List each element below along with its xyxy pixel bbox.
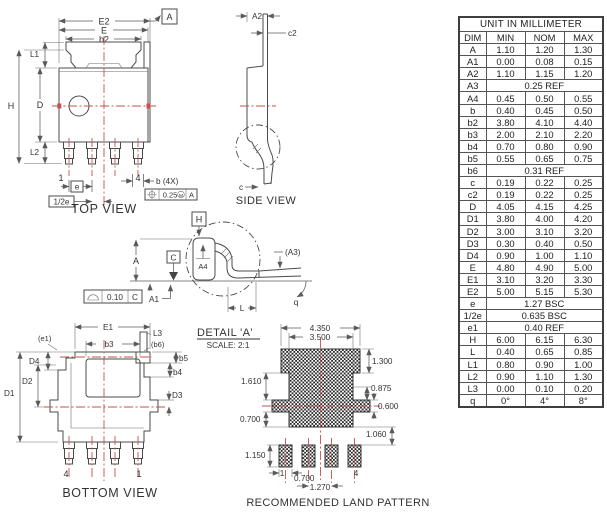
table-row: b60.31 REF [459,165,603,177]
value-cell: 2.00 [486,128,525,140]
table-row: A10.000.080.15 [459,56,603,68]
value-cell: L1 [459,358,486,370]
value-cell: A2 [459,68,486,80]
col-header-dim: DIM [459,32,486,44]
side-view-title: SIDE VIEW [236,195,297,207]
dim-label-1270: 1.270 [310,483,331,492]
value-cell: e [459,298,486,310]
value-cell: 1.30 [564,370,603,382]
value-cell: 0.90 [564,140,603,152]
dim-label-D3: D3 [172,391,183,400]
dim-label-half-e: 1/2e [54,198,70,207]
table-row: b40.700.800.90 [459,140,603,152]
table-row: b23.804.104.40 [459,116,603,128]
top-pin1-label: 1 [58,173,63,183]
table-row: q0°4°8° [459,394,603,407]
value-span-cell: 0.25 REF [486,80,603,92]
value-cell: 1/2e [459,310,486,322]
dim-label-H: H [8,101,15,111]
value-cell: 4.10 [525,116,564,128]
value-cell: 0.70 [486,140,525,152]
value-cell: 1.10 [525,370,564,382]
dim-label-L3: L3 [153,329,163,338]
table-row: c20.190.220.25 [459,189,603,201]
value-span-cell: 0.635 BSC [486,310,603,322]
value-cell: 4.40 [564,116,603,128]
table-row: L20.901.101.30 [459,370,603,382]
svg-text:M: M [179,193,183,199]
value-cell: 0.45 [486,92,525,104]
value-cell: L3 [459,382,486,394]
bottom-pin1-label: 1 [136,469,141,479]
land-pattern-main-pad [272,349,370,427]
value-cell: 3.80 [486,116,525,128]
dim-label-A3: (A3) [285,248,301,257]
side-view: A2 c2 c SIDE VIEW [236,12,297,207]
value-cell: 1.20 [525,44,564,56]
value-cell: 5.00 [486,285,525,297]
table-row: D4.054.154.25 [459,201,603,213]
table-row: L10.800.901.00 [459,358,603,370]
land-pin4-label: 4 [354,469,359,478]
value-cell: D2 [459,225,486,237]
flatness-tolerance-datum: C [132,293,138,302]
value-cell: 1.10 [564,249,603,261]
value-cell: 4.80 [486,261,525,273]
value-cell: 5.00 [564,261,603,273]
position-tolerance-frame: 0.25 M A [145,189,197,200]
table-row: b32.002.102.20 [459,128,603,140]
value-cell: 4.05 [486,201,525,213]
datum-a-label: A [166,12,172,22]
table-row: A30.25 REF [459,80,603,92]
package-body-top [59,68,148,142]
value-cell: 3.80 [486,213,525,225]
dim-label-E1: E1 [103,323,113,332]
value-cell: e1 [459,322,486,334]
table-row: H6.006.156.30 [459,334,603,346]
value-cell: 1.10 [486,44,525,56]
value-cell: 6.15 [525,334,564,346]
table-row: D40.901.001.10 [459,249,603,261]
land-pin1-label: 1 [280,469,285,478]
value-cell: 1.20 [564,68,603,80]
value-cell: b6 [459,165,486,177]
value-cell: D [459,201,486,213]
value-cell: b5 [459,152,486,164]
value-cell: L [459,346,486,358]
value-cell: 0.25 [564,189,603,201]
position-tolerance-icon [148,190,157,199]
mmc-modifier-icon: M [178,191,185,199]
value-cell: 1.15 [525,68,564,80]
land-pattern-view: 4.350 3.500 1.300 0.875 0.600 1.060 1.61… [240,324,430,509]
value-cell: 0.45 [525,104,564,116]
table-row: A1.101.201.30 [459,44,603,56]
dim-label-1150: 1.150 [245,451,266,460]
dim-label-0600: 0.600 [378,402,399,411]
bottom-view: E1 (e1) D4 D2 D1 b3 L3 (b6) b5 b4 D3 4 1… [4,323,189,500]
value-cell: 0.50 [564,237,603,249]
dim-label-L1: L1 [30,50,40,59]
dim-table-body: A1.101.201.30A10.000.080.15A21.101.151.2… [459,44,603,407]
table-row: D30.300.400.50 [459,237,603,249]
dim-label-0700-left: 0.700 [240,415,261,424]
dim-label-A: A [133,256,139,266]
value-cell: 0.22 [525,189,564,201]
detail-a-scale: SCALE: 2:1 [207,341,250,350]
dimension-table-panel: UNIT IN MILLIMETER DIM MIN NOM MAX A1.10… [458,16,603,408]
value-cell: 3.30 [564,273,603,285]
value-cell: c [459,177,486,189]
table-row: 1/2e0.635 BSC [459,310,603,322]
front-detail-view: H A4 A C A1 0.10 C (A3) q L [84,212,312,313]
bottom-pin4-label: 4 [63,469,68,479]
value-cell: 4.20 [564,213,603,225]
value-cell: 0.80 [486,358,525,370]
dim-label-0700-bottom: 0.700 [294,474,315,483]
dim-label-b3: b3 [104,340,114,349]
value-cell: E [459,261,486,273]
dim-label-c2: c2 [288,29,297,38]
dim-label-3500: 3.500 [310,333,331,342]
value-cell: D3 [459,237,486,249]
value-cell: 0.40 [486,104,525,116]
value-cell: E1 [459,273,486,285]
table-row: E4.804.905.00 [459,261,603,273]
top-pin4-label: 4 [135,173,140,183]
value-cell: 5.15 [525,285,564,297]
flatness-tolerance-frame: 0.10 C [84,284,150,303]
flatness-tolerance-value: 0.10 [107,293,123,302]
value-cell: c2 [459,189,486,201]
value-cell: H [459,334,486,346]
value-cell: A1 [459,56,486,68]
table-row: c0.190.220.25 [459,177,603,189]
value-cell: b2 [459,116,486,128]
dim-label-1610: 1.610 [241,377,262,386]
lead-tip-stub [140,332,147,352]
dimension-table: UNIT IN MILLIMETER DIM MIN NOM MAX A1.10… [458,16,604,408]
dim-label-e: e [75,183,80,192]
table-row: e10.40 REF [459,322,603,334]
value-cell: 0.55 [564,92,603,104]
land-pattern-title: RECOMMENDED LAND PATTERN [246,497,429,509]
value-cell: A4 [459,92,486,104]
datum-c-triangle [169,272,178,281]
value-cell: 0.20 [564,382,603,394]
dim-label-e1-ref: (e1) [38,334,52,343]
table-row: L0.400.650.85 [459,346,603,358]
top-view: E2 A E b2 H D L1 L2 1 4 e 1/2e b (4X) [8,9,197,216]
dim-label-D: D [37,100,44,110]
col-header-nom: NOM [525,32,564,44]
value-cell: 3.10 [486,273,525,285]
value-cell: 0.50 [564,104,603,116]
datum-h-label: H [196,215,203,225]
detail-a-callout-circle-side [236,125,280,169]
bottom-view-title: BOTTOM VIEW [62,486,157,500]
value-cell: 3.20 [525,273,564,285]
value-cell: 0.08 [525,56,564,68]
table-row: A21.101.151.20 [459,68,603,80]
value-cell: 0.80 [525,140,564,152]
value-cell: 3.00 [486,225,525,237]
dim-label-D1: D1 [4,389,15,398]
dim-label-D4: D4 [29,357,40,366]
table-row: E13.103.203.30 [459,273,603,285]
value-cell: 0.22 [525,177,564,189]
table-row: b50.550.650.75 [459,152,603,164]
table-row: D23.003.103.20 [459,225,603,237]
table-row: A40.450.500.55 [459,92,603,104]
table-header-row: DIM MIN NOM MAX [459,32,603,44]
value-cell: D4 [459,249,486,261]
table-row: b0.400.450.50 [459,104,603,116]
value-cell: 0.00 [486,382,525,394]
value-cell: 0.10 [525,382,564,394]
value-cell: b4 [459,140,486,152]
value-cell: 0.90 [486,370,525,382]
dim-label-1300: 1.300 [372,357,393,366]
value-cell: E2 [459,285,486,297]
value-span-cell: 0.40 REF [486,322,603,334]
value-cell: 0.85 [564,346,603,358]
value-cell: 0.75 [564,152,603,164]
value-cell: 8° [564,394,603,407]
value-cell: 0.90 [486,249,525,261]
position-tolerance-datum: A [189,191,194,200]
value-cell: L2 [459,370,486,382]
value-cell: 0.90 [525,358,564,370]
value-cell: 1.00 [564,358,603,370]
value-cell: 4.15 [525,201,564,213]
value-cell: 0.50 [525,92,564,104]
body-section-outline [193,238,215,280]
value-cell: q [459,394,486,407]
dim-label-b6: (b6) [151,340,165,349]
value-cell: 4.00 [525,213,564,225]
table-row: e1.27 BSC [459,298,603,310]
table-row: E25.005.155.30 [459,285,603,297]
value-cell: 4.25 [564,201,603,213]
package-tab-outline [66,42,141,68]
detail-a-caption: DETAIL 'A' SCALE: 2:1 [197,327,260,350]
value-cell: 0.19 [486,177,525,189]
value-cell: 0.55 [486,152,525,164]
dim-label-0875: 0.875 [371,384,392,393]
value-cell: 3.20 [564,225,603,237]
value-cell: 6.00 [486,334,525,346]
dim-label-L: L [240,304,245,313]
value-cell: 0.40 [486,346,525,358]
table-row: L30.000.100.20 [459,382,603,394]
col-header-max: MAX [564,32,603,44]
dim-label-b5: b5 [179,354,189,363]
value-span-cell: 0.31 REF [486,165,603,177]
value-cell: 2.20 [564,128,603,140]
value-cell: A [459,44,486,56]
value-cell: 3.10 [525,225,564,237]
col-header-min: MIN [486,32,525,44]
value-cell: 0.65 [525,346,564,358]
table-title: UNIT IN MILLIMETER [459,17,603,32]
value-cell: 0.40 [525,237,564,249]
package-outline-drawing-page: E2 A E b2 H D L1 L2 1 4 e 1/2e b (4X) [0,0,607,514]
value-cell: 0.15 [564,56,603,68]
dim-label-q: q [294,298,299,307]
position-tolerance-value: 0.25 [163,191,178,200]
dim-label-A4: A4 [198,262,207,271]
detail-a-callout-circle-front [186,222,260,296]
table-title-row: UNIT IN MILLIMETER [459,17,603,32]
value-cell: 6.30 [564,334,603,346]
value-cell: 0.65 [525,152,564,164]
value-cell: 0.00 [486,56,525,68]
value-cell: 5.30 [564,285,603,297]
value-cell: D1 [459,213,486,225]
value-cell: A3 [459,80,486,92]
value-cell: 4.90 [525,261,564,273]
dim-label-4350: 4.350 [310,324,331,333]
value-cell: b3 [459,128,486,140]
dim-label-L2: L2 [30,148,40,157]
value-span-cell: 1.27 BSC [486,298,603,310]
seating-plane-symbol-icon [88,295,99,300]
table-row: D13.804.004.20 [459,213,603,225]
dim-label-c: c [239,183,243,192]
detail-a-title: DETAIL 'A' [197,327,253,339]
datum-c-label: C [171,254,177,263]
top-view-title: TOP VIEW [71,202,136,216]
dim-label-1060: 1.060 [366,430,387,439]
value-cell: 1.00 [525,249,564,261]
value-cell: 0° [486,394,525,407]
dim-label-b4: b4 [173,368,183,377]
value-cell: 0.19 [486,189,525,201]
dim-label-b4x: b (4X) [156,177,179,186]
value-cell: 0.25 [564,177,603,189]
value-cell: b [459,104,486,116]
dim-label-D2: D2 [22,377,33,386]
value-cell: 1.30 [564,44,603,56]
value-cell: 1.10 [486,68,525,80]
value-cell: 0.30 [486,237,525,249]
value-cell: 4° [525,394,564,407]
dim-label-A2: A2 [252,12,262,21]
dim-label-A1: A1 [149,295,159,304]
value-cell: 2.10 [525,128,564,140]
